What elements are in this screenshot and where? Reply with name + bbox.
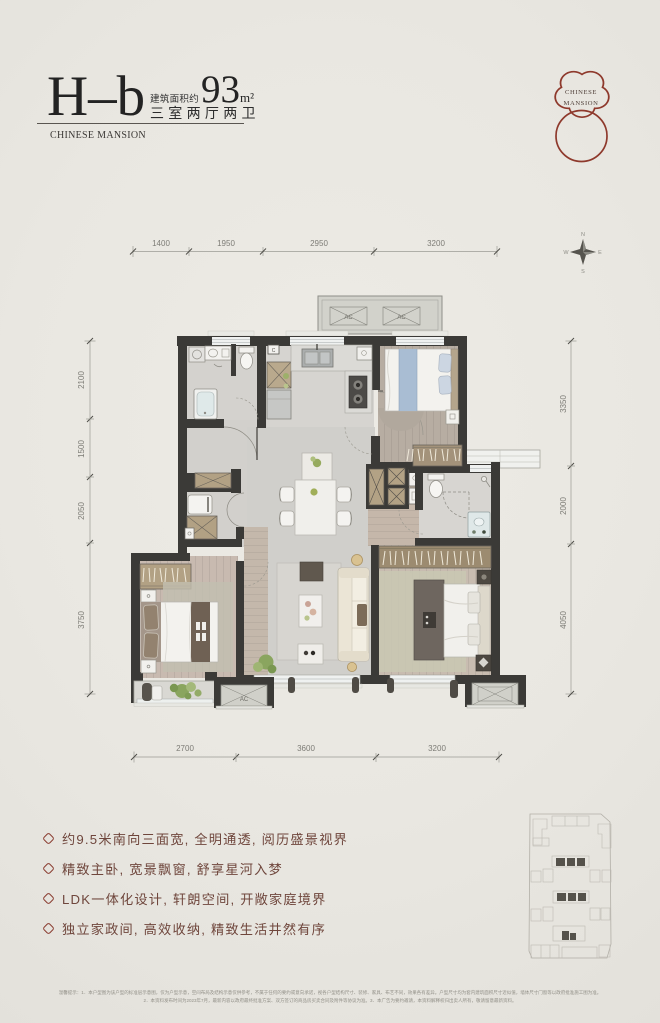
svg-text:S: S [581, 269, 585, 275]
svg-text:3200: 3200 [427, 239, 445, 248]
svg-text:3350: 3350 [559, 395, 568, 413]
svg-text:2950: 2950 [310, 239, 328, 248]
svg-text:4050: 4050 [559, 611, 568, 629]
svg-text:E: E [598, 250, 602, 256]
svg-text:1500: 1500 [77, 440, 86, 458]
svg-text:CHINESE: CHINESE [565, 89, 597, 96]
svg-text:3600: 3600 [297, 744, 315, 753]
svg-text:W: W [563, 250, 569, 256]
svg-text:C: C [272, 348, 276, 354]
svg-text:AC: AC [240, 697, 249, 703]
svg-text:2100: 2100 [77, 371, 86, 389]
svg-text:2700: 2700 [176, 744, 194, 753]
svg-text:AC: AC [397, 315, 406, 321]
svg-text:AC: AC [344, 315, 353, 321]
svg-text:2050: 2050 [77, 502, 86, 520]
svg-text:1950: 1950 [217, 239, 235, 248]
svg-text:2000: 2000 [559, 497, 568, 515]
svg-text:3200: 3200 [428, 744, 446, 753]
svg-text:3750: 3750 [77, 611, 86, 629]
svg-text:1400: 1400 [152, 239, 170, 248]
svg-text:N: N [581, 232, 585, 238]
svg-text:MANSION: MANSION [564, 100, 599, 107]
